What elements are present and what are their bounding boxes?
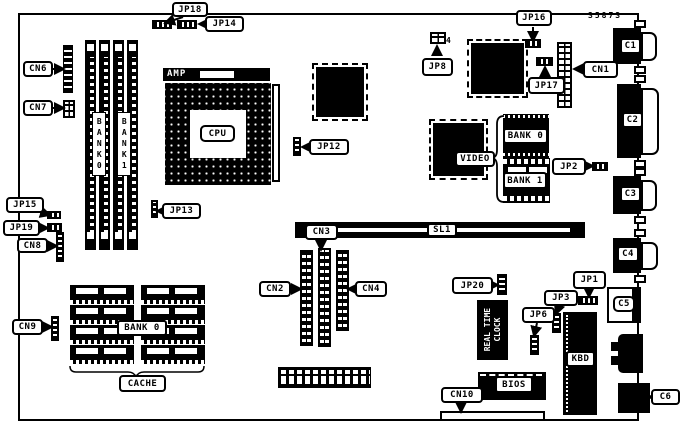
cache-bank0-label: BANK 0 [117,320,167,336]
pointer-line [556,306,559,314]
c3-label: C3 [620,186,641,202]
jp1-label: JP1 [573,271,606,289]
cn3-label: CN3 [305,224,338,240]
jp13-label: JP13 [162,203,201,219]
cn6-label: CN6 [23,61,53,77]
jp20-label: JP20 [452,277,493,294]
sl1-label: SL1 [427,223,457,237]
cn7-label: CN7 [23,100,53,116]
jp3-label: JP3 [544,290,578,306]
cpu-label: CPU [200,125,235,142]
jp14-label: JP14 [205,16,244,32]
cache-label: CACHE [119,375,166,392]
jp6-label: JP6 [522,307,555,323]
pointer-line [534,323,537,336]
video-bank1-label: BANK 1 [503,172,547,189]
cn8-label: CN8 [17,238,48,253]
video-label: VIDEO [455,151,495,167]
cn2-label: CN2 [259,281,291,297]
jp18-label: JP18 [172,2,208,17]
jp19-label: JP19 [3,220,40,236]
video-bank0-label: BANK 0 [503,128,548,144]
jp17-label: JP17 [528,77,565,94]
jp12-label: JP12 [309,139,349,155]
bios-label: BIOS [495,376,533,393]
c4-label: C4 [617,246,639,262]
c6-label: C6 [651,389,680,405]
jp15-label: JP15 [6,197,44,213]
motherboard-diagram: 35873 BANK0 BANK1 4 AMP CPU BANK 0 BANK … [0,0,683,427]
cn10-label: CN10 [441,387,483,403]
jp16-label: JP16 [516,10,552,26]
c5-label: C5 [613,296,635,312]
cn4-label: CN4 [355,281,387,297]
c2-label: C2 [622,112,643,128]
jp2-label: JP2 [552,158,586,175]
kbd-label: KBD [566,351,595,367]
c1-label: C1 [620,38,641,54]
cn1-label: CN1 [583,61,618,78]
jp8-label: JP8 [422,58,453,76]
cn9-label: CN9 [12,319,43,335]
pointer-line [165,17,183,23]
